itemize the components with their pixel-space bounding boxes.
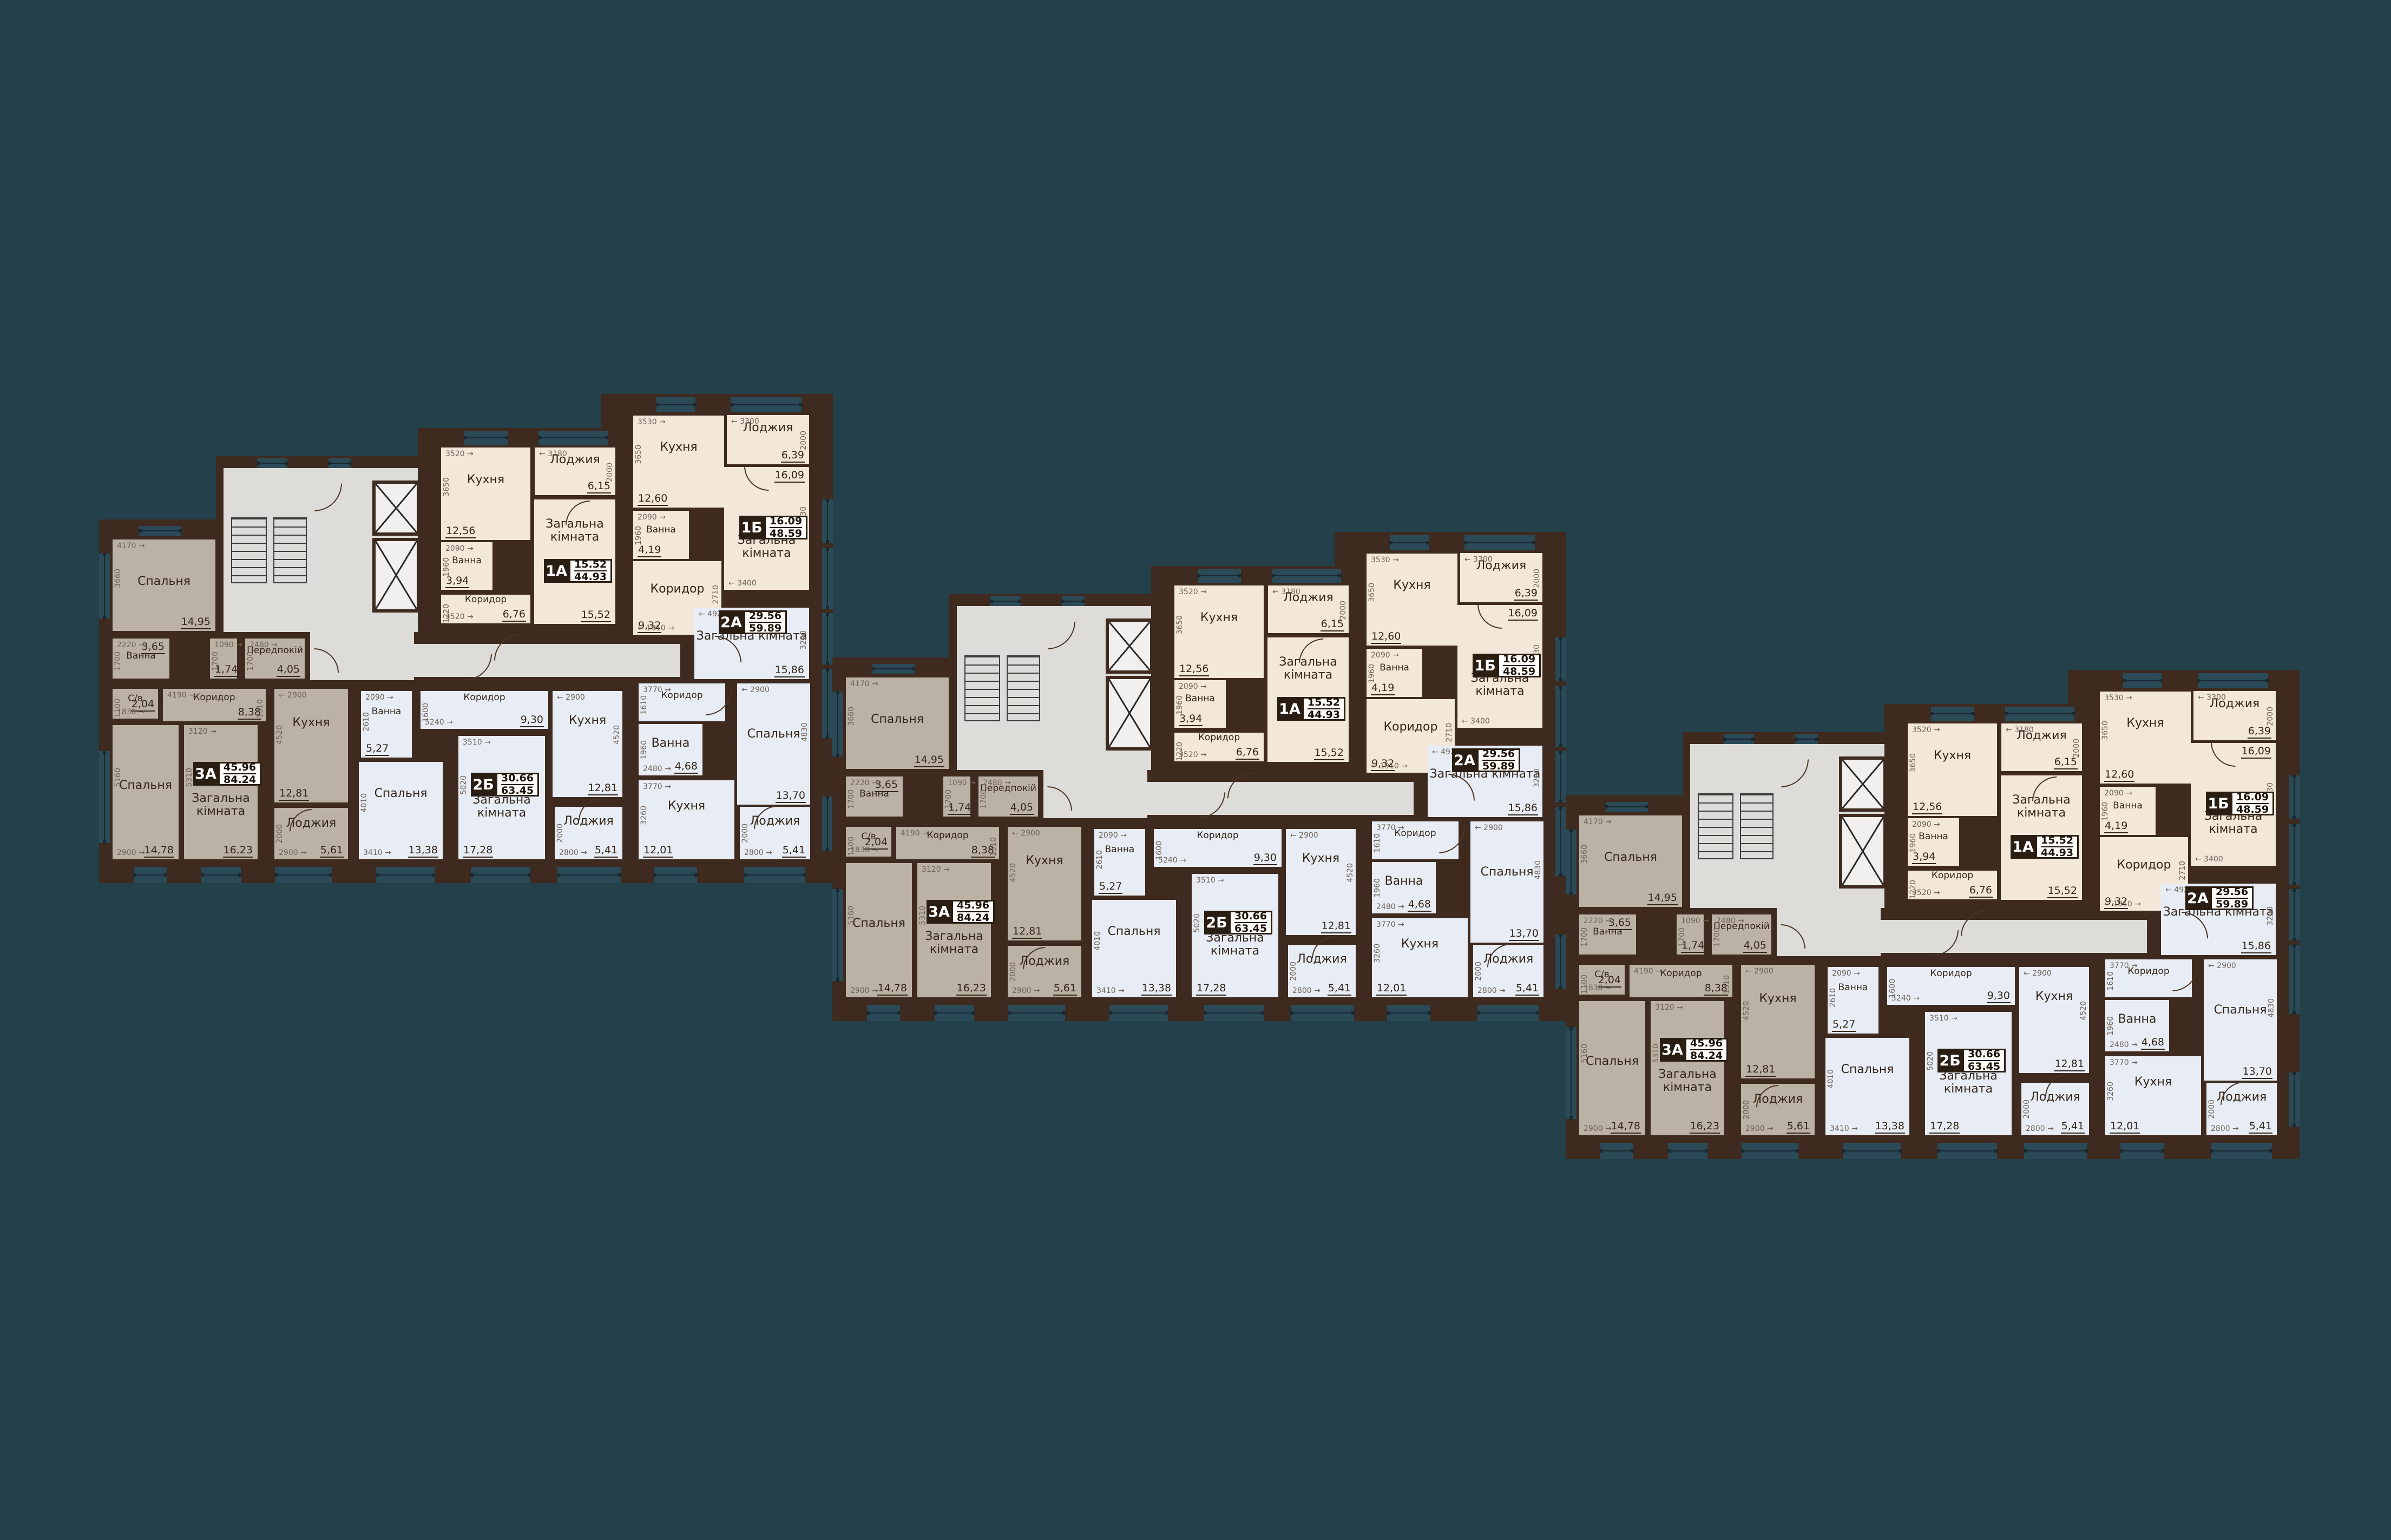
room: Загальна кімната17,283510 →5020 [1192,874,1278,997]
room-dim-label: 2000 [2208,1100,2216,1119]
window [1291,1005,1354,1021]
room-area-label: 16,09 [1508,607,1538,619]
room-area-value: 14,95 [914,754,944,767]
window [1198,569,1241,583]
plaque-living-area: 16.09 [2236,792,2269,804]
room: Кухня12,603530 →3650 [633,416,724,508]
room-area-value: 5,61 [320,844,344,858]
room-area-label: 5,27 [1832,1018,1856,1030]
plaque-total-area: 63.45 [501,785,534,797]
room-dim-label: ← 3400 [2195,855,2223,864]
window-rail-line [1796,739,1817,740]
room-area-label: 12,60 [2104,768,2134,780]
room-name-label: Кухня [2105,1076,2201,1089]
plaque-areas: 30.6663.45 [1962,1049,2006,1072]
room-dim-label: 1610 [1373,833,1382,853]
plaque-total-area: 44.93 [2041,847,2073,859]
window [1600,1143,1633,1159]
room-dim-label: 5020 [1926,1051,1935,1071]
window [2289,1072,2300,1127]
room-area-label: 5,61 [320,844,344,856]
room-dim-label: ← 1910 → [1371,762,1408,771]
room: Ванна3,652220 →1700 [846,776,903,817]
room-dim-label: 1600 [1888,979,1897,998]
room-dim-label: ← 2900 [1290,831,1318,840]
room-area-value: 6,76 [502,608,526,622]
window [2123,673,2162,688]
room-dim-label: 4520 [1346,863,1355,883]
room: Спальня14,782900 →5160 [846,863,912,997]
window-rail-line [1560,687,1561,746]
room: Спальня13,383410 →4010 [359,762,443,859]
room-area-value: 5,27 [365,742,389,756]
window-rail-line [276,874,331,876]
room-area-label: 15,86 [774,664,805,676]
room: Загальна кімната16,233120 →5310 [184,725,258,859]
room-area-value: 17,28 [1196,982,1226,996]
room-area-value: 6,76 [1236,746,1259,760]
window-rail-line [2294,825,2295,884]
window [275,867,332,883]
window [1566,1027,1577,1119]
room: Лоджия6,39← 33002000 [727,415,809,464]
room-dim-label: 2710 [1445,723,1454,742]
room-dim-label: 1100 [114,699,122,718]
room-dim-label: 2480 → [1376,903,1404,911]
room-dim-label: 4520 [275,725,284,745]
window [1795,734,1818,744]
window-rail-line [2212,1150,2271,1151]
unit-plaque: 1Б16.0948.59 [2206,792,2274,815]
room-area-label: 6,76 [1969,884,1993,896]
room-dim-label: 3650 [1175,615,1184,635]
window-rail-line [1560,752,1561,801]
unit-plaque: 1Б16.0948.59 [1473,654,1541,677]
room-dim-label: 2900 → [1012,986,1040,995]
room-dim-label: 3510 → [1196,876,1224,885]
room-dim-label: 2480 → [643,765,671,773]
room-area-value: 14,95 [1647,892,1678,905]
room-dim-label: 3770 → [643,782,671,791]
room-dim-label: 1960 [1175,695,1184,715]
plaque-total-area: 84.24 [224,774,256,786]
room-dim-label: 3410 → [1096,986,1125,995]
window [2005,707,2074,721]
window-rail-line [1479,1012,1538,1013]
room-name-label: Коридор [1908,871,1997,881]
window-rail-line [1607,806,1647,807]
room-area-label: 12,81 [279,787,309,799]
room-area-label: 5,41 [1328,982,1351,994]
room: Кухня12,603530 →3650 [2100,692,2191,784]
room-area-value: 4,68 [1408,898,1431,912]
room-dim-label: 3770 → [643,686,671,694]
room-area-value: 13,38 [408,844,438,858]
room-name-label: Кухня [1372,938,1468,951]
room: 1,741090 →1700 [210,639,237,679]
window [1566,830,1577,894]
room-dim-label: 3290 [2266,906,2275,926]
room-area-label: 12,81 [588,782,618,794]
room-area-label: 13,70 [1509,927,1539,939]
unit-plaque: 2А29.5659.89 [1452,748,1520,772]
room-area-label: 5,27 [1099,880,1122,892]
room-area-label: 12,81 [1745,1063,1776,1075]
room-dim-label: 2800 → [559,848,587,857]
room-area-label: 6,39 [1514,587,1538,599]
room-name-label: Спальня [1092,925,1176,938]
room-area-label: 5,41 [782,844,806,856]
plaque-total-area: 63.45 [1968,1061,2000,1072]
window-rail-line [827,501,828,542]
room-dim-label: 1700 [1713,927,1722,947]
room-name-label: Загальна кімната [1651,1068,1724,1094]
room-area-value: 4,68 [2141,1036,2165,1050]
hallway [414,644,680,677]
room-area-value: 12,01 [643,844,673,858]
room-dim-label: 5020 [1193,913,1201,933]
room-area-value: 16,23 [223,844,253,858]
plaque-living-area: 29.56 [2216,886,2248,899]
room-name-label: Загальна кімната [458,794,545,820]
room-area-label: 16,09 [2241,745,2271,757]
room: С/в2,041830 →1100 [1579,965,1625,995]
room-dim-label: 4190 → [167,691,195,700]
window-rail-line [827,614,828,663]
room-dim-label: ← 2900 [2208,962,2236,970]
elevator-shaft [1839,814,1887,889]
room-dim-label: 3510 → [1929,1014,1958,1023]
room-dim-label: 1700 [944,789,953,809]
window-rail-line [732,404,800,405]
window-rail-line [655,874,696,876]
room: 1,741090 →1700 [943,776,970,817]
room-dim-label: 2090 → [1099,831,1127,840]
room-dim-label: 1700 [246,651,255,671]
room: Загальна кімната16,233120 →5310 [1651,1001,1724,1135]
room-dim-label: 1610 [640,695,648,715]
window [1387,1005,1430,1021]
room-dim-label: 2090 → [365,693,393,702]
elevator-shaft [1106,618,1153,674]
plaque-living-area: 15.52 [2041,835,2073,847]
room-name-label: Спальня [1579,851,1682,864]
room: Передпокій4,052480 →1700 [978,776,1038,817]
window-rail-line [2294,1074,2295,1126]
window [832,692,843,756]
plaque-total-area: 48.59 [2236,804,2269,815]
window [464,431,508,445]
room-name-label: Кухня [1908,749,1997,762]
room-dim-label: 4190 → [901,829,929,838]
room: Спальня13,70← 29004830 [2204,959,2277,1081]
room-dim-label: 3530 → [1371,556,1399,564]
window [744,867,805,883]
room-dim-label: 1960 [2101,802,2110,821]
window [557,867,621,883]
room-dim-label: 3120 → [922,865,950,874]
room-dim-label: 1310 [989,837,998,857]
room-dim-label: 2900 → [1745,1124,1773,1133]
window [1555,751,1566,802]
plaque-living-area: 15.52 [1308,697,1340,709]
room-area-label: 13,38 [1141,982,1172,994]
room-dim-label: 1100 [1580,975,1589,994]
room-area-label: 15,86 [2241,940,2271,952]
room-dim-label: ← 2900 [1012,829,1040,838]
room: Ванна5,272090 →2610 [361,691,412,758]
room: Спальня13,70← 29004830 [1470,821,1543,943]
plaque-total-area: 63.45 [1234,923,1267,934]
room: Ванна4,682480 →1960 [2105,1000,2169,1051]
room-area-label: 4,05 [1010,801,1034,813]
room-name-label: Коридор [1367,721,1455,734]
unit-plaque: 2Б30.6663.45 [471,773,539,797]
room-dim-label: 3770 → [1376,920,1404,929]
room-dim-label: 4830 [800,722,809,742]
room: Коридор8,384190 →1310 [163,689,266,721]
room-area-label: 5,41 [1515,982,1539,994]
room-dim-label: 1310 [1723,975,1731,995]
room: Ванна4,682480 →1960 [1372,862,1436,913]
unit-plaque: 2А29.5659.89 [719,610,787,634]
room-area-label: 15,52 [2047,885,2078,897]
window-rail-line [837,890,838,980]
room-area-label: 5,61 [1786,1120,1810,1132]
unit-plaque: 3А45.9684.24 [1660,1038,1728,1062]
room-dim-label: 2000 [556,824,564,843]
room: Коридор6,763520 →1220 [441,595,530,623]
room-dim-label: 5160 [847,906,856,925]
staircase [964,655,1040,721]
room-name-label: Загальна кімната [184,792,258,818]
room: Кухня12,81← 29004520 [1286,829,1356,935]
room-area-value: 13,70 [1509,927,1539,941]
window [822,548,833,609]
room-area-value: 12,60 [2104,768,2134,782]
room-area-value: 15,86 [774,664,805,677]
room-name-label: Коридор [2100,859,2188,872]
room: Спальня14,954170 →3660 [113,539,215,631]
window-rail-line [827,549,828,608]
window [2120,1143,2164,1159]
room-name-label: Коридор [421,693,548,703]
room-dim-label: 3290 [1533,768,1541,788]
window [471,867,530,883]
window-rail-line [465,437,507,438]
window [2289,945,2300,1014]
room-area-value: 13,70 [2242,1065,2272,1079]
room-area-value: 6,76 [1969,884,1993,898]
room-dim-label: 1960 [640,740,648,760]
room-dim-label: 3520 → [1912,726,1940,734]
room-dim-label: 1960 [1368,664,1376,683]
room-area-label: 5,41 [2249,1120,2272,1132]
room-name-label: Кухня [1367,579,1457,592]
window-rail-line [1466,542,1534,543]
room-area-label: 17,28 [1929,1120,1960,1132]
room-dim-label: ← 2900 [279,691,307,700]
room-dim-label: 3650 [442,477,451,497]
room-dim-label: 1220 [1909,880,1917,899]
room-area-label: 12,01 [2110,1120,2140,1132]
window [1008,1005,1065,1021]
window-rail-line [1111,1012,1167,1013]
room-area-label: 12,56 [1912,801,1942,813]
room: Ванна4,682480 →1960 [639,724,702,775]
window-rail-line [2294,890,2295,939]
window [1204,1005,1264,1021]
room-dim-label: ← 3400 [728,579,757,588]
window [99,751,110,843]
window-rail-line [377,874,433,876]
room-name-label: Спальня [359,787,443,800]
room: Ванна5,272090 →2610 [1094,829,1145,896]
room-dim-label: 2000 [1742,1100,1751,1120]
room-name-label: Кухня [1174,611,1264,624]
room-dim-label: 2610 [1829,988,1837,1008]
room-area-value: 13,38 [1875,1120,1905,1134]
window-rail-line [873,668,914,669]
plaque-living-area: 30.66 [1968,1049,2000,1061]
room-dim-label: 4830 [2267,998,2276,1018]
room-dim-label: ← 3300 [731,417,759,426]
room-area-value: 6,15 [2054,756,2078,769]
window [2289,889,2300,940]
room: Спальня14,782900 →5160 [113,725,179,859]
room-dim-label: 1220 [1175,742,1184,761]
plaque-unit-code: 1А [1277,697,1302,721]
window-rail-line [837,693,838,755]
room-dim-label: 4520 [613,725,621,745]
room-dim-label: 1610 [2106,971,2115,991]
unit-plaque: 3А45.9684.24 [927,900,995,924]
room-dim-label: 2610 [1095,850,1104,870]
room-dim-label: 4830 [1534,860,1542,880]
room-dim-label: 4170 → [1584,818,1612,826]
room: Кухня12,81← 29004520 [274,689,348,802]
room-dim-label: 3520 → [445,450,474,458]
room-area-label: 14,95 [914,754,944,766]
room-name-label: Кухня [274,716,348,729]
window [1555,686,1566,747]
room-area-value: 3,94 [445,575,469,588]
room-area-value: 6,15 [587,480,611,493]
room: Лоджия6,39← 33002000 [2193,691,2276,740]
window [2289,824,2300,885]
room-dim-label: 3290 [799,630,808,650]
room-area-label: 12,60 [1371,630,1401,642]
room: Лоджия6,15← 31802000 [2001,723,2082,771]
room-dim-label: 2900 → [1584,1124,1612,1133]
plaque-unit-code: 1Б [739,516,764,539]
room-name-label: Кухня [639,800,734,813]
unit-plaque: 1А15.5244.93 [2011,835,2079,859]
window [1464,535,1535,550]
plaque-unit-code: 2Б [1204,911,1229,934]
window-rail-line [868,1012,899,1013]
room-area-value: 5,41 [1328,982,1351,996]
plaque-areas: 15.5244.93 [1302,697,1345,721]
room: Кухня12,013770 →3260 [1372,918,1468,997]
room-dim-label: 1220 [442,604,451,623]
window-rail-line [1743,1150,1797,1151]
room-dim-label: ← 3180 [2006,726,2034,734]
plaque-unit-code: 2А [719,610,744,634]
room-area-value: 4,19 [1371,682,1395,695]
room: Коридор8,384190 →1310 [1630,965,1732,997]
room-dim-label: 3660 [114,569,122,588]
window-rail-line [202,874,240,876]
plaque-areas: 30.6663.45 [496,773,539,797]
room-area-value: 14,78 [877,982,908,996]
room-area-value: 4,05 [1010,801,1034,815]
room-dim-label: 3120 → [1655,1003,1683,1012]
room: Ванна4,192090 →1960 [2100,787,2156,835]
room-dim-label: 1700 [847,789,856,809]
room-dim-label: 2000 [2266,707,2275,726]
room-dim-label: 5020 [459,775,468,795]
room-dim-label: 1700 [980,789,988,809]
room-dim-label: 2220 → [850,779,878,787]
room-dim-label: 5160 [1580,1044,1589,1063]
room: Кухня12,563520 →3650 [1174,585,1264,678]
window [2289,775,2300,819]
room-area-label: 12,81 [2054,1058,2085,1070]
window-rail-line [2294,776,2295,818]
room-dim-label: 2800 → [1477,986,1506,995]
room-area-label: 12,56 [445,525,476,537]
room-area-value: 15,52 [1314,747,1344,760]
room-dim-label: 2000 [1009,962,1017,982]
room-area-label: 13,70 [776,789,806,801]
room: Спальня14,954170 →3660 [846,677,949,769]
staircase-divider [999,655,1008,721]
room-area-label: 14,78 [877,982,908,994]
room-area-value: 9,30 [1987,990,2011,1003]
window-rail-line [1725,739,1753,740]
plaque-total-area: 59.89 [749,623,781,634]
window [99,554,110,618]
window [2024,1143,2087,1159]
window [822,499,833,543]
room: Ванна5,272090 →2610 [1828,967,1878,1034]
room-area-label: 5,41 [594,844,618,856]
room-area-label: 17,28 [1196,982,1226,994]
room-name-label: Коридор [1174,733,1264,743]
plaque-areas: 16.0948.59 [1497,654,1541,677]
window-rail-line [1391,542,1428,543]
room-area-value: 16,09 [2241,745,2271,759]
window-rail-line [1669,1150,1706,1151]
window [2211,1143,2272,1159]
plaque-living-area: 16.09 [770,516,802,528]
plaque-areas: 45.9684.24 [218,762,261,786]
window-rail-line [1273,575,1340,576]
window [822,669,833,738]
room-area-label: 14,95 [181,616,211,628]
room-area-value: 13,70 [776,789,806,803]
window [1606,802,1648,812]
room-name-label: Загальна кімната [1192,932,1278,958]
window [139,526,181,536]
room-area-value: 5,41 [594,844,618,858]
window [1555,807,1566,876]
window [134,867,167,883]
room-name-label: Спальня [113,779,179,792]
staircase [1698,793,1773,859]
room: Кухня12,81← 29004520 [553,691,622,797]
